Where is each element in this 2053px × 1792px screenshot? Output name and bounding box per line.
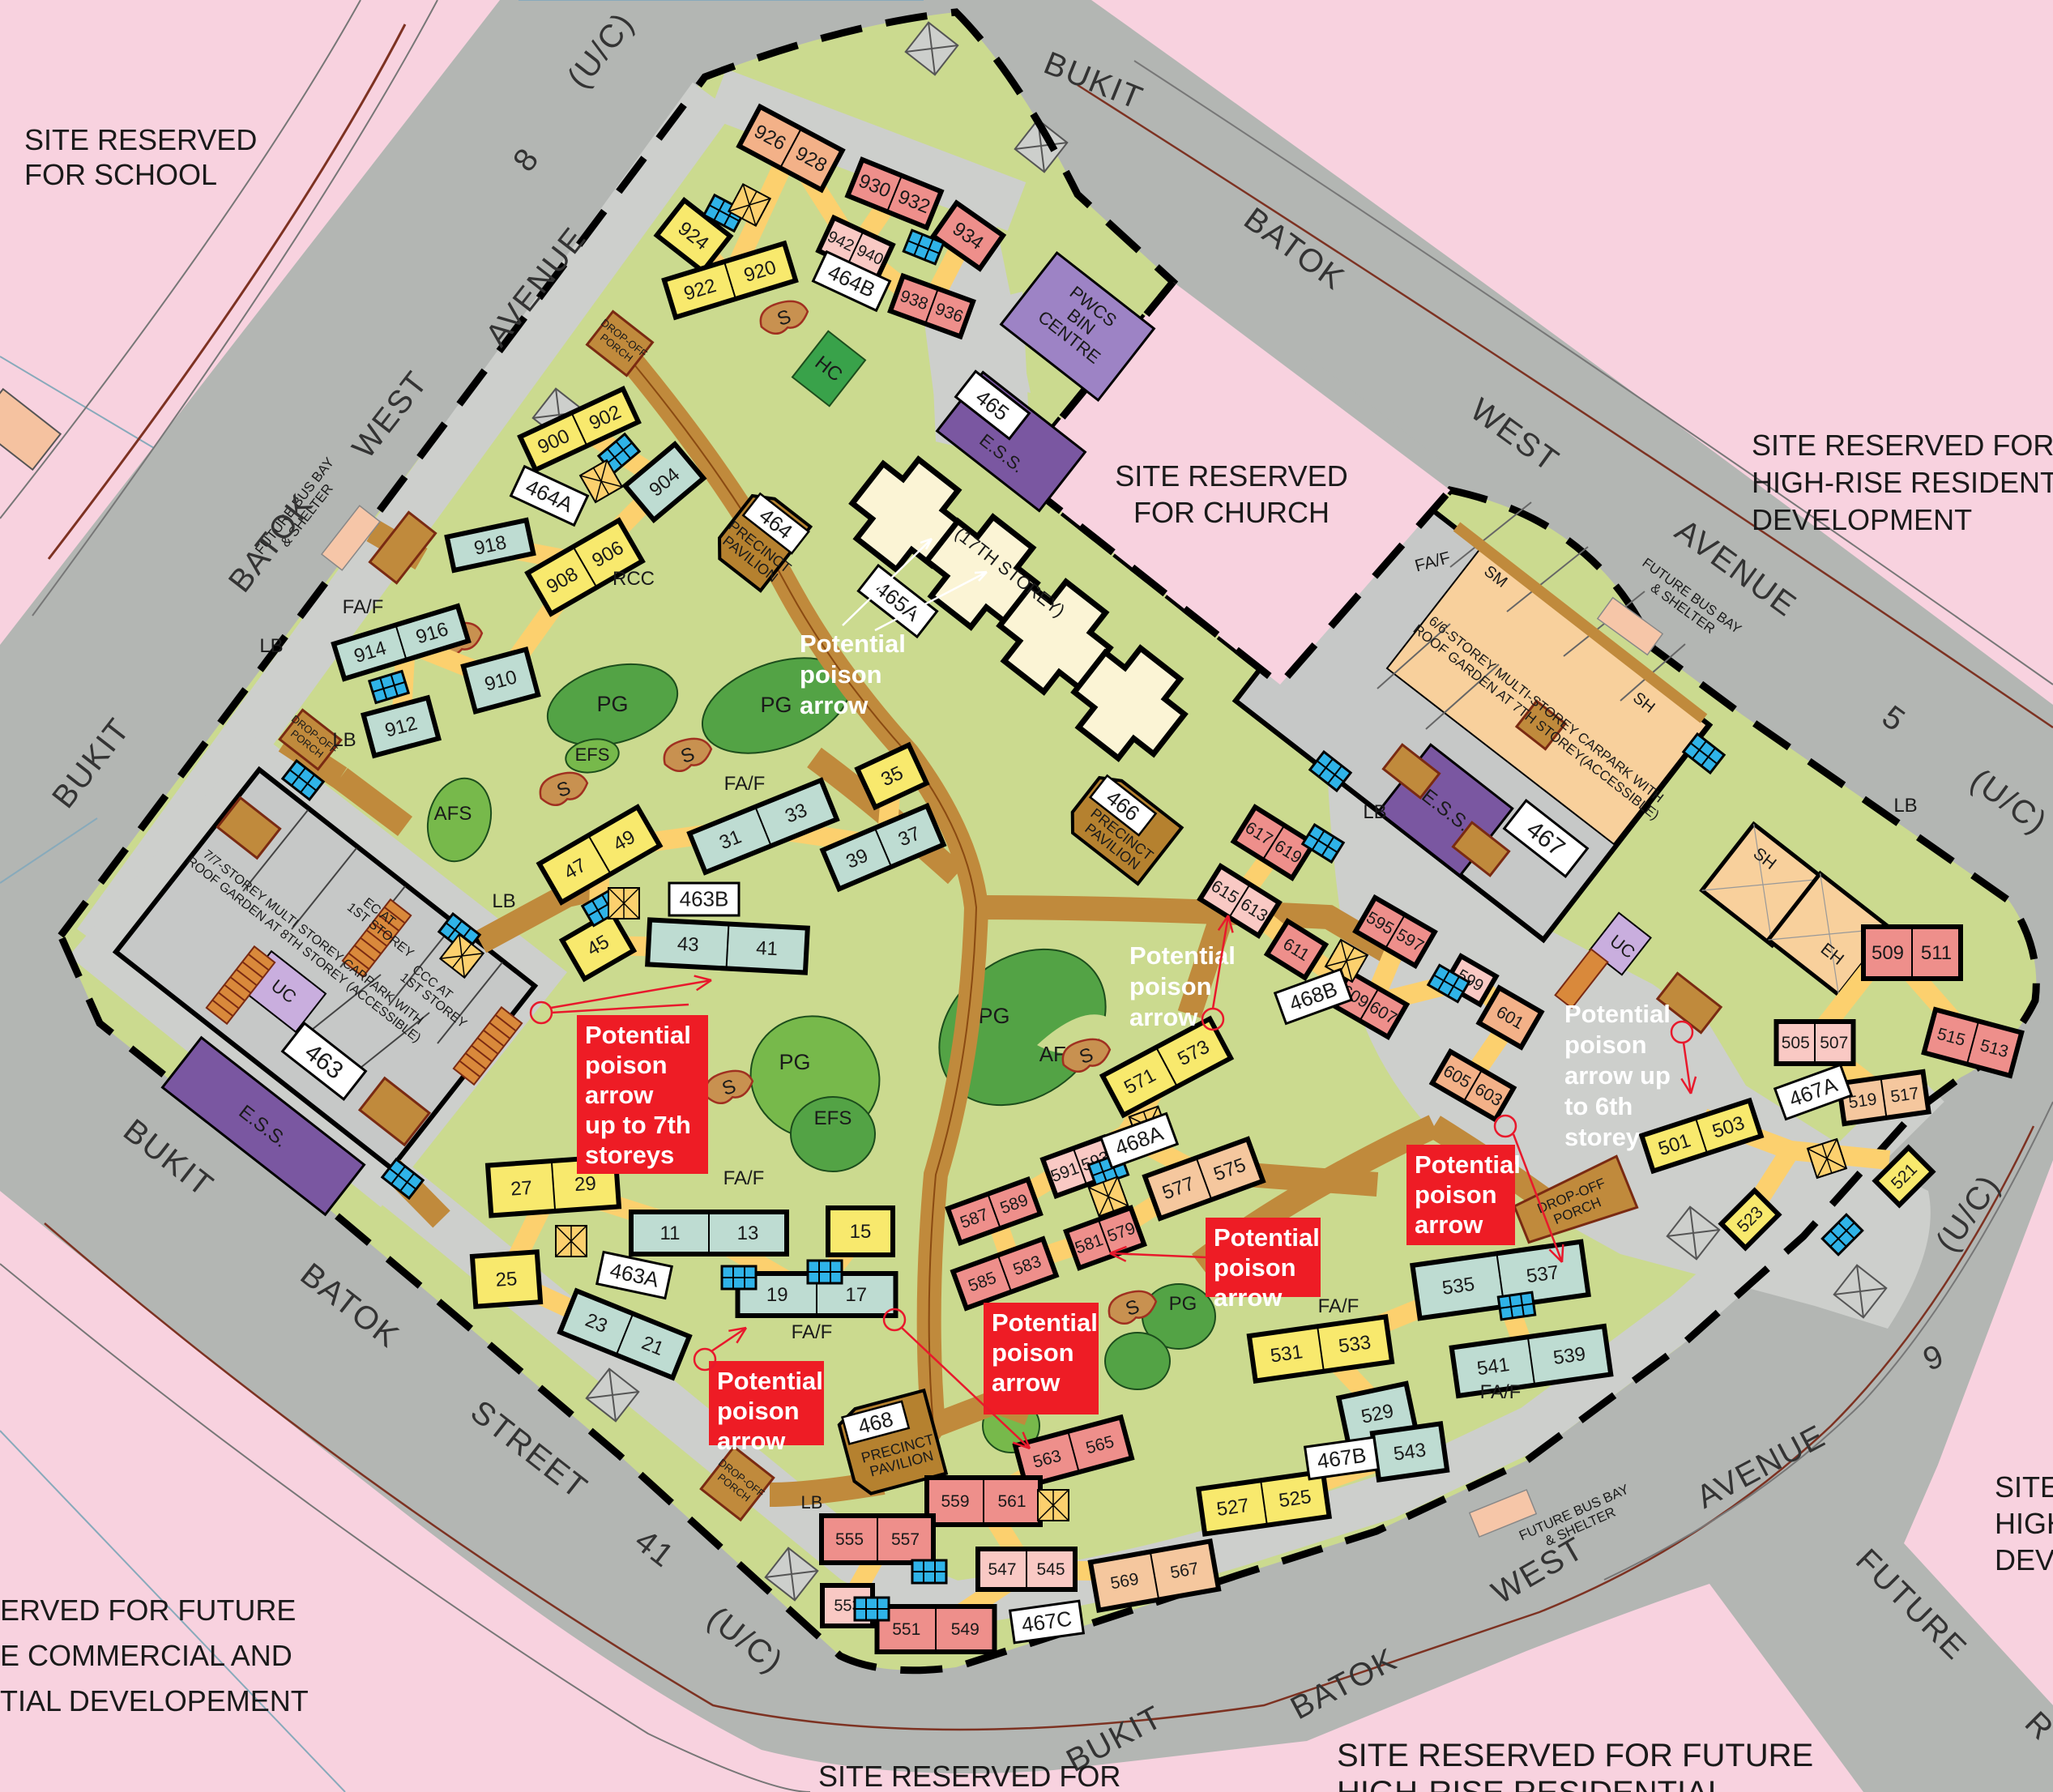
svg-text:poison: poison (1129, 972, 1212, 1001)
svg-text:arrow: arrow (800, 691, 869, 719)
svg-text:LB: LB (492, 890, 515, 912)
svg-text:11: 11 (660, 1222, 681, 1244)
svg-text:15: 15 (850, 1221, 872, 1243)
svg-text:535: 535 (1441, 1274, 1475, 1299)
svg-text:PG: PG (760, 693, 792, 717)
svg-text:arrow: arrow (585, 1081, 654, 1109)
svg-text:525: 525 (1278, 1486, 1312, 1512)
svg-text:SITE RESERVED: SITE RESERVED (1115, 459, 1347, 493)
svg-text:SITE RE: SITE RE (1995, 1470, 2053, 1504)
svg-text:541: 541 (1475, 1354, 1510, 1380)
svg-text:SITE RESERVED FOR FUTURE: SITE RESERVED FOR FUTURE (1337, 1738, 1813, 1773)
svg-text:arrow: arrow (1214, 1283, 1283, 1312)
svg-text:PG: PG (1169, 1293, 1197, 1315)
svg-text:527: 527 (1215, 1495, 1250, 1521)
svg-text:SITE RESERVED: SITE RESERVED (24, 123, 257, 156)
svg-text:41: 41 (756, 937, 779, 960)
svg-text:17: 17 (845, 1284, 867, 1306)
svg-text:EFS: EFS (575, 745, 610, 765)
svg-text:to 6th: to 6th (1564, 1092, 1633, 1120)
svg-text:13: 13 (737, 1222, 759, 1244)
svg-text:storey: storey (1564, 1123, 1641, 1151)
svg-text:545: 545 (1036, 1560, 1065, 1579)
svg-text:HIGH-RI: HIGH-RI (1995, 1507, 2053, 1540)
svg-text:LB: LB (801, 1492, 823, 1513)
svg-text:531: 531 (1269, 1341, 1304, 1367)
svg-text:FA/F: FA/F (1480, 1381, 1522, 1403)
svg-text:SITE RESERVED FOR FUTURE: SITE RESERVED FOR FUTURE (1752, 429, 2053, 462)
svg-text:Potential: Potential (1214, 1223, 1320, 1252)
svg-text:511: 511 (1921, 942, 1952, 964)
svg-text:LB: LB (259, 635, 283, 657)
svg-text:25: 25 (495, 1268, 519, 1291)
svg-text:Potential: Potential (1415, 1150, 1521, 1179)
svg-text:ERVED FOR FUTURE: ERVED FOR FUTURE (0, 1594, 296, 1627)
svg-text:LB: LB (1893, 795, 1917, 817)
svg-text:LB: LB (332, 729, 356, 751)
svg-text:E COMMERCIAL AND: E COMMERCIAL AND (0, 1639, 292, 1672)
svg-text:559: 559 (941, 1492, 969, 1511)
svg-text:FA/F: FA/F (1318, 1295, 1359, 1317)
svg-text:507: 507 (1820, 1034, 1848, 1052)
svg-text:AFS: AFS (434, 803, 472, 825)
svg-text:storeys: storeys (585, 1141, 674, 1169)
svg-text:HIGH-RISE RESIDENTIAL: HIGH-RISE RESIDENTIAL (1337, 1775, 1726, 1792)
svg-text:Potential: Potential (585, 1021, 691, 1049)
svg-text:DEVELO: DEVELO (1995, 1543, 2053, 1577)
svg-text:Potential: Potential (800, 629, 906, 658)
svg-text:FA/F: FA/F (343, 596, 384, 618)
svg-text:PG: PG (978, 1004, 1009, 1028)
svg-text:poison: poison (1564, 1030, 1647, 1059)
svg-text:FA/F: FA/F (723, 1167, 765, 1189)
svg-text:FOR CHURCH: FOR CHURCH (1133, 496, 1330, 529)
svg-text:537: 537 (1525, 1261, 1560, 1287)
svg-text:19: 19 (766, 1284, 788, 1306)
svg-text:poison: poison (1214, 1253, 1296, 1282)
svg-text:LB: LB (1363, 801, 1386, 823)
svg-text:Potential: Potential (992, 1308, 1098, 1337)
svg-text:arrow: arrow (1129, 1003, 1198, 1031)
svg-text:poison: poison (992, 1338, 1074, 1367)
svg-text:poison: poison (585, 1051, 668, 1079)
svg-text:EFS: EFS (814, 1107, 852, 1129)
svg-text:PG: PG (779, 1050, 810, 1074)
svg-text:FOR SCHOOL: FOR SCHOOL (24, 158, 217, 191)
svg-text:TIAL DEVELOPEMENT: TIAL DEVELOPEMENT (0, 1684, 309, 1717)
svg-text:poison: poison (717, 1397, 800, 1425)
svg-text:Potential: Potential (717, 1367, 823, 1395)
svg-text:557: 557 (891, 1530, 920, 1549)
svg-text:551: 551 (892, 1620, 920, 1639)
svg-text:27: 27 (510, 1177, 533, 1201)
svg-text:509: 509 (1872, 942, 1904, 964)
svg-text:555: 555 (835, 1530, 864, 1549)
svg-text:505: 505 (1782, 1034, 1810, 1052)
svg-text:543: 543 (1392, 1439, 1427, 1465)
svg-text:SITE RESERVED FOR: SITE RESERVED FOR (818, 1760, 1120, 1792)
svg-text:Potential: Potential (1564, 1000, 1671, 1028)
svg-text:533: 533 (1337, 1331, 1372, 1357)
svg-text:561: 561 (997, 1492, 1026, 1511)
svg-text:517: 517 (1889, 1084, 1920, 1107)
svg-text:539: 539 (1551, 1343, 1586, 1369)
svg-text:HIGH-RISE RESIDENTIAL: HIGH-RISE RESIDENTIAL (1752, 466, 2053, 499)
svg-text:arrow: arrow (992, 1368, 1061, 1397)
svg-text:arrow: arrow (1415, 1210, 1483, 1239)
svg-text:549: 549 (951, 1620, 980, 1639)
svg-text:poison: poison (1415, 1180, 1497, 1209)
svg-text:DEVELOPMENT: DEVELOPMENT (1752, 503, 1972, 536)
svg-text:43: 43 (677, 933, 699, 956)
svg-text:547: 547 (988, 1560, 1016, 1579)
svg-text:RCC: RCC (612, 568, 655, 590)
svg-text:arrow: arrow (717, 1427, 786, 1455)
svg-text:29: 29 (574, 1172, 597, 1196)
svg-text:poison: poison (800, 660, 882, 689)
svg-text:arrow up: arrow up (1564, 1061, 1671, 1090)
svg-text:463B: 463B (680, 887, 729, 911)
svg-text:FA/F: FA/F (724, 773, 766, 795)
svg-text:up to 7th: up to 7th (585, 1111, 691, 1139)
svg-text:PG: PG (596, 692, 628, 716)
svg-text:FA/F: FA/F (792, 1321, 833, 1343)
